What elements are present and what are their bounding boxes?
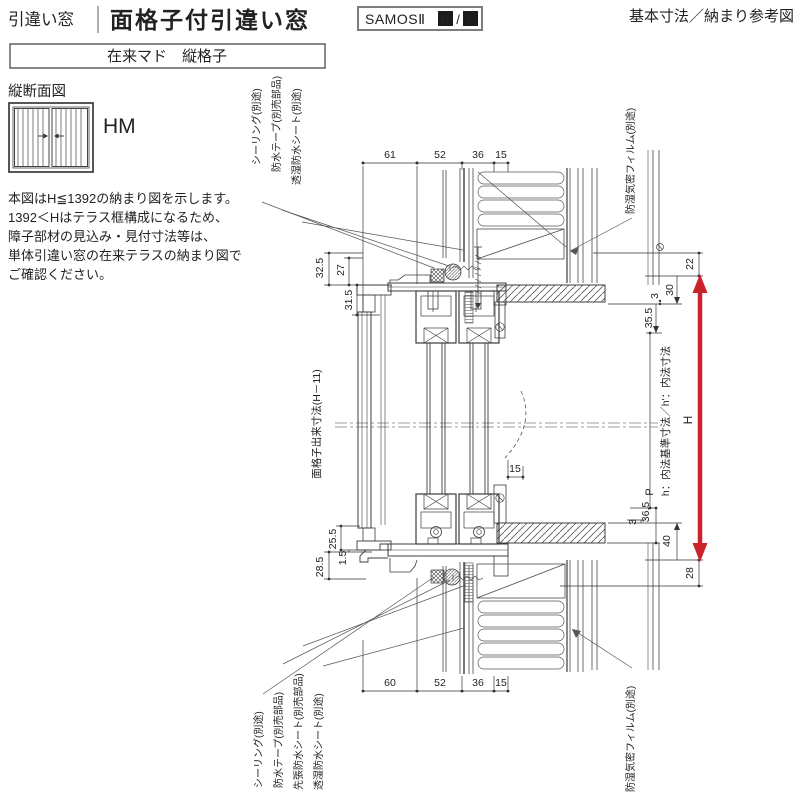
dim-3-top: 3 <box>649 293 661 299</box>
variant-label: 在来マド 縦格子 <box>107 48 227 65</box>
dim-25-5: 25.5 <box>327 529 339 550</box>
label-wp-sheet-top: 透湿防水シート(別途) <box>290 88 303 185</box>
brand-sep: / <box>456 12 460 27</box>
svg-text:障子部材の見込み・見付寸法等は、: 障子部材の見込み・見付寸法等は、 <box>8 229 216 244</box>
screw-symbol <box>657 244 664 251</box>
dim-top-15: 15 <box>495 149 507 161</box>
label-pre-wp-sheet-bottom: 先張防水シート(別売部品) <box>292 673 305 790</box>
sash-interior <box>459 291 499 544</box>
wall-bottom <box>443 543 659 674</box>
dim-3-bottom: 3 <box>627 519 639 525</box>
slide-arrows-icon <box>38 134 64 139</box>
svg-text:本図はH≦1392の納まり図を示します。: 本図はH≦1392の納まり図を示します。 <box>8 191 238 206</box>
insulation-top <box>478 172 564 226</box>
sill-casing-board <box>497 523 605 543</box>
note-text: 本図はH≦1392の納まり図を示します。 1392＜Hはテラス框構成になるため、… <box>8 191 242 282</box>
sash-exterior <box>416 291 456 544</box>
dim-top-52: 52 <box>434 149 446 161</box>
section-title: 縦断面図 <box>8 83 66 100</box>
brand-name: SAMOSⅡ <box>365 11 425 27</box>
head-casing-board <box>497 285 605 302</box>
svg-text:1392＜Hはテラス框構成になるため、: 1392＜Hはテラス框構成になるため、 <box>8 210 228 225</box>
label-sealing-top: シーリング(別途) <box>250 88 263 165</box>
svg-text:ご確認ください。: ご確認ください。 <box>8 267 112 282</box>
dim-center-15: 15 <box>509 463 521 475</box>
dim-28-5: 28.5 <box>314 557 326 578</box>
backer-rod-top <box>445 264 461 280</box>
doc-type: 基本寸法／納まり参考図 <box>629 8 794 25</box>
dim-32-5: 32.5 <box>314 258 326 279</box>
casing-boards <box>497 285 605 543</box>
label-film-bottom: 防湿気密フィルム(別途) <box>624 686 637 792</box>
dim-1-5: 1.5 <box>337 551 349 566</box>
label-wp-tape-bottom: 防水テープ(別売部品) <box>272 692 285 788</box>
dim-bottom-60: 60 <box>384 677 396 689</box>
catalog-page: 引違い窓 面格子付引違い窓 SAMOSⅡ H / L 基本寸法／納まり参考図 在… <box>0 0 800 800</box>
model-code: HM <box>103 115 136 138</box>
dim-40: 40 <box>661 535 673 547</box>
screw-symbol <box>496 323 504 331</box>
dim-31-5: 31.5 <box>343 290 355 311</box>
svg-text:単体引違い窓の在来テラスの納まり図で: 単体引違い窓の在来テラスの納まり図で <box>8 248 242 263</box>
handle-swing-arc <box>505 391 526 458</box>
label-H: H <box>681 416 695 425</box>
brand-badge: SAMOSⅡ H / L <box>358 7 482 30</box>
label-wp-sheet-bottom: 透湿防水シート(別途) <box>312 693 325 790</box>
variant-box: 在来マド 縦格子 <box>10 44 325 68</box>
label-inner-height: h：内法基準寸法／h'：内法寸法 <box>659 346 672 496</box>
dim-28: 28 <box>684 567 696 579</box>
label-film-top: 防湿気密フィルム(別途) <box>624 108 637 214</box>
label-wp-tape-top: 防水テープ(別売部品) <box>270 76 283 172</box>
left-panel: 縦断面図 HM 本図はH≦1392の納まり図を示します。 <box>8 83 242 282</box>
screw-symbol <box>496 494 504 502</box>
brand-l-label: L <box>467 14 474 26</box>
dim-22: 22 <box>684 258 696 270</box>
window-elevation-icon <box>9 103 93 172</box>
label-P: P <box>644 488 656 495</box>
label-grille-height: 面格子出来寸法(H－11) <box>310 369 323 478</box>
page-title: 面格子付引違い窓 <box>110 7 310 33</box>
dim-30: 30 <box>664 284 676 296</box>
dim-bottom-36: 36 <box>472 677 484 689</box>
dim-bottom-52: 52 <box>434 677 446 689</box>
sealing-block-bottom <box>431 570 444 583</box>
window-category: 引違い窓 <box>8 10 74 29</box>
label-sealing-bottom: シーリング(別途) <box>252 711 265 788</box>
insulation-bottom <box>478 601 564 669</box>
dim-top-36: 36 <box>472 149 484 161</box>
dim-bottom-15: 15 <box>495 677 507 689</box>
dim-36-5: 36.5 <box>640 502 652 523</box>
dim-27: 27 <box>335 264 347 276</box>
brand-h-label: H <box>442 14 450 26</box>
dim-35-5: 35.5 <box>643 308 655 329</box>
header: 引違い窓 面格子付引違い窓 SAMOSⅡ H / L 基本寸法／納まり参考図 在… <box>8 6 794 68</box>
face-grille <box>357 285 391 550</box>
drawing-canvas: 引違い窓 面格子付引違い窓 SAMOSⅡ H / L 基本寸法／納まり参考図 在… <box>0 0 800 800</box>
section-drawing: 61 52 36 15 60 52 36 15 32.5 27 31.5 25.… <box>250 76 708 792</box>
sealing-block-top <box>431 269 444 282</box>
dim-top-61: 61 <box>384 149 396 161</box>
